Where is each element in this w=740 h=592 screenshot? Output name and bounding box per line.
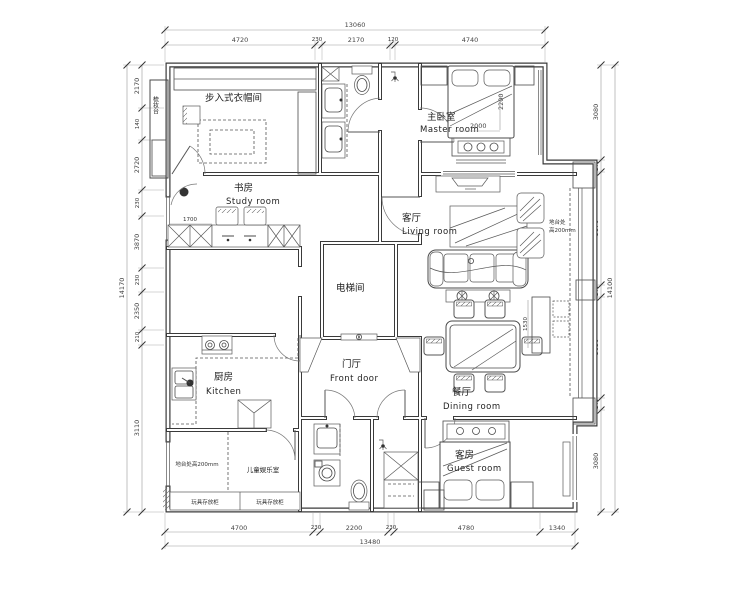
bay-annotation-line1: 地台处: [549, 218, 566, 226]
dim-top-seg: 230: [312, 37, 323, 43]
toilet-tank-icon: [352, 66, 372, 74]
label-guest-zh: 客房: [455, 449, 474, 461]
stool: [553, 321, 569, 337]
label-platform: 地台处高200mm: [175, 460, 218, 468]
pillow: [444, 480, 472, 500]
room-hall: 门厅 Front door: [330, 358, 379, 384]
dim-top-seg: 120: [388, 37, 399, 43]
label-study-en: Study room: [226, 197, 280, 207]
door-kitchen: [274, 335, 300, 361]
dim-left-seg: 2720: [133, 157, 141, 174]
label-hall-zh: 门厅: [342, 358, 362, 370]
label-closet: 步入式衣帽间: [205, 92, 262, 104]
label-toy-cabinet: 玩具存放柜: [191, 498, 219, 506]
curtain-master: [539, 70, 542, 155]
label-kitchen-en: Kitchen: [206, 387, 241, 397]
dim-bottom-seg: 230: [311, 525, 322, 531]
radiator-guest: [563, 442, 570, 496]
label-living-en: Living room: [402, 227, 457, 237]
nightstand: [511, 482, 533, 508]
dim-left-seg: 3870: [133, 234, 141, 251]
washing-machine-icon: [314, 460, 340, 486]
dimension-left: 2170 140 2720 230 3870 230 2350 210 3110…: [118, 62, 146, 516]
toilet-tank-icon: [349, 502, 369, 510]
dim-left-seg: 140: [135, 118, 141, 129]
floor-plan-canvas: 13060 4720 230 2170 120 4740 4700 230 22…: [0, 0, 740, 592]
room-master: 主卧室 Master room 2000 2200: [420, 66, 534, 163]
closet-island: [198, 120, 266, 163]
dim-left-seg: 210: [135, 331, 141, 342]
bay-glass: [579, 188, 583, 398]
label-guest-en: Guest room: [447, 464, 502, 474]
dim-right-seg: 3080: [592, 104, 600, 121]
clothes-rack-right: [298, 92, 316, 174]
dim-bottom-seg: 4700: [231, 524, 248, 532]
door-kids: [265, 430, 295, 460]
dim-left-seg: 230: [135, 197, 141, 208]
doors: [172, 98, 455, 460]
label-kids: 儿童娱乐室: [247, 465, 280, 474]
bay-window-right: 地台处 高200mm: [549, 162, 595, 424]
nightstand: [421, 66, 447, 85]
nightstand: [515, 66, 534, 85]
dim-bottom-total: 13480: [360, 538, 381, 546]
door-bath-bottom: [325, 390, 355, 418]
coffee-table: [450, 206, 527, 247]
dim-bottom-seg: 2200: [346, 524, 363, 532]
dimension-top: 13060 4720 230 2170 120 4740: [162, 21, 549, 49]
label-kitchen-zh: 厨房: [214, 371, 233, 383]
dim-top-seg: 4720: [232, 36, 249, 44]
door-corridor-bottom: [377, 390, 405, 418]
shower-icon: [379, 440, 387, 450]
room-closet: 步入式衣帽间 梳妆台: [152, 68, 317, 176]
dim-bed-width: 2000: [470, 122, 487, 130]
dim-desk: 1700: [183, 217, 197, 223]
dining-chair: [485, 300, 505, 318]
window-sill: [456, 160, 506, 163]
pillow: [484, 70, 510, 86]
tv-icon: [452, 178, 488, 186]
dim-top-seg: 2170: [348, 36, 365, 44]
stool: [553, 301, 569, 317]
room-guest: 客房 Guest room: [417, 421, 533, 508]
room-study: 1700 书房 Study room: [168, 182, 300, 247]
dim-sideboard: 1530: [523, 317, 529, 331]
dining-chair: [424, 337, 444, 355]
dining-table: [446, 321, 520, 372]
dim-top-total: 13060: [345, 21, 366, 29]
pillow: [452, 70, 478, 86]
room-dining: 1530 餐厅 Dining room: [424, 297, 569, 412]
room-bath-top: [322, 66, 399, 158]
window-guest: [572, 434, 579, 502]
bay-annotation-line2: 高200mm: [549, 226, 576, 234]
dining-chair: [485, 374, 505, 392]
stove-icon: [202, 336, 232, 354]
bay-column-bottom: [573, 398, 595, 424]
room-kids: 玩具存放柜 玩具存放柜 地台处高200mm 儿童娱乐室: [163, 432, 300, 510]
dim-bed-depth: 2200: [497, 93, 505, 110]
closet-niche: [150, 80, 168, 178]
dim-right-total: 14100: [606, 278, 614, 299]
label-dining-en: Dining room: [443, 402, 501, 412]
dim-bottom-seg: 4780: [458, 524, 475, 532]
shower-icon: [391, 72, 399, 82]
splay-column: [396, 338, 420, 372]
label-hall-en: Front door: [330, 374, 379, 384]
dim-left-seg: 2350: [133, 303, 141, 320]
desk: [212, 225, 268, 247]
dim-top-seg: 4740: [462, 36, 479, 44]
window-kids-left: [167, 440, 170, 488]
dining-chair: [454, 300, 474, 318]
dim-right-seg: 3080: [592, 453, 600, 470]
label-living-zh: 客厅: [402, 212, 422, 224]
floor-plan-page: 13060 4720 230 2170 120 4740 4700 230 22…: [0, 0, 740, 592]
dimension-bottom: 4700 230 2200 230 4780 1340 13480: [162, 524, 579, 550]
label-dining-zh: 餐厅: [452, 386, 472, 398]
niche-shelves: [152, 140, 166, 176]
label-master-zh: 主卧室: [427, 111, 456, 123]
pillow: [476, 480, 504, 500]
room-living: 客厅 Living room: [402, 176, 544, 302]
wall-hatch: [163, 488, 170, 510]
door-closet: [190, 146, 205, 174]
label-study-zh: 书房: [234, 182, 253, 194]
label-elevator: 电梯间: [336, 282, 365, 294]
dim-left-total: 14170: [118, 278, 126, 299]
door-bath-top: [348, 98, 380, 132]
room-kitchen: 厨房 Kitchen: [172, 336, 298, 428]
dim-left-seg: 230: [135, 274, 141, 285]
dim-left-seg: 2170: [133, 78, 141, 95]
splay-column: [300, 338, 322, 372]
label-toy-cabinet: 玩具存放柜: [256, 498, 284, 506]
dim-bottom-seg: 1340: [549, 524, 566, 532]
dim-bottom-seg: 230: [386, 525, 397, 531]
dim-left-seg: 3110: [133, 420, 141, 437]
label-dresser: 梳妆台: [152, 95, 159, 115]
